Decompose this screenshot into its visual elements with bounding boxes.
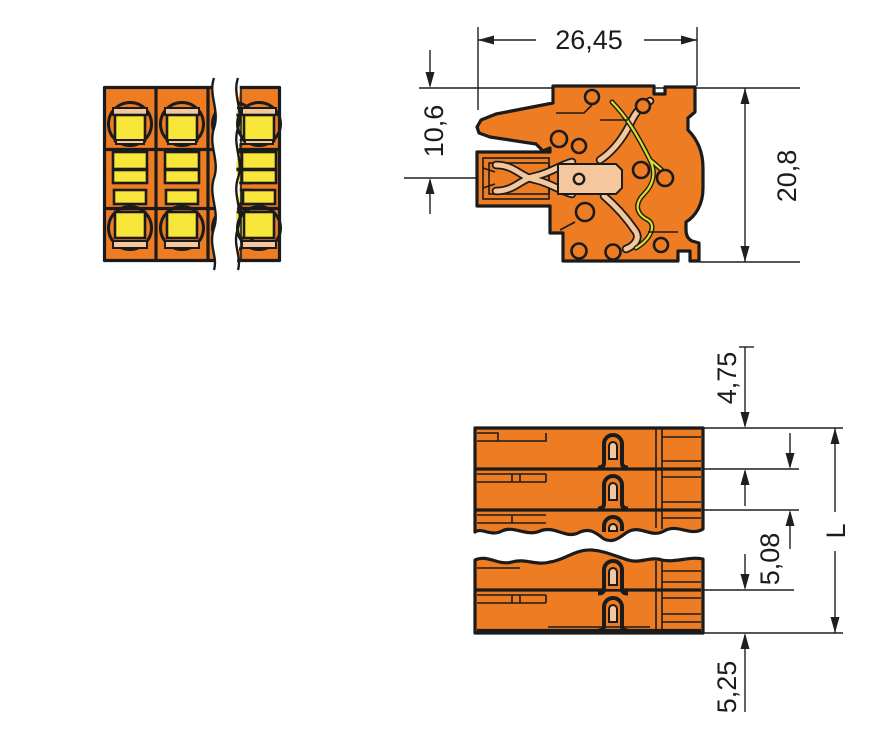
- dim-label-upper-height: 10,6: [419, 105, 449, 158]
- dim-label-total-length: L: [821, 523, 851, 538]
- cross-section-view: [404, 27, 800, 262]
- front-view: [105, 78, 281, 270]
- pole-column-1: [109, 103, 152, 250]
- front-view-break: [212, 78, 240, 270]
- dim-label-end-offset-bottom: 5,25: [712, 661, 742, 714]
- dim-end-offset-top: 4,75: [712, 347, 754, 506]
- dim-total-length: L: [821, 428, 851, 633]
- pole-column-2: [161, 103, 204, 250]
- dim-label-pole-pitch: 5,08: [755, 533, 785, 586]
- dim-total-height: 20,8: [741, 88, 803, 262]
- dim-upper-height: 10,6: [419, 50, 449, 214]
- dim-label-end-offset-top: 4,75: [712, 352, 742, 405]
- dim-label-overall-depth: 26,45: [555, 25, 623, 55]
- drawing-canvas: 26,45 10,6 20,8 4,75: [0, 0, 877, 743]
- pole-column-last: [238, 103, 281, 250]
- dim-label-total-height: 20,8: [772, 150, 802, 203]
- dim-overall-depth: 26,45: [478, 25, 697, 55]
- dim-pole-pitch: 5,08: [755, 433, 795, 585]
- technical-drawing: 26,45 10,6 20,8 4,75: [0, 0, 877, 743]
